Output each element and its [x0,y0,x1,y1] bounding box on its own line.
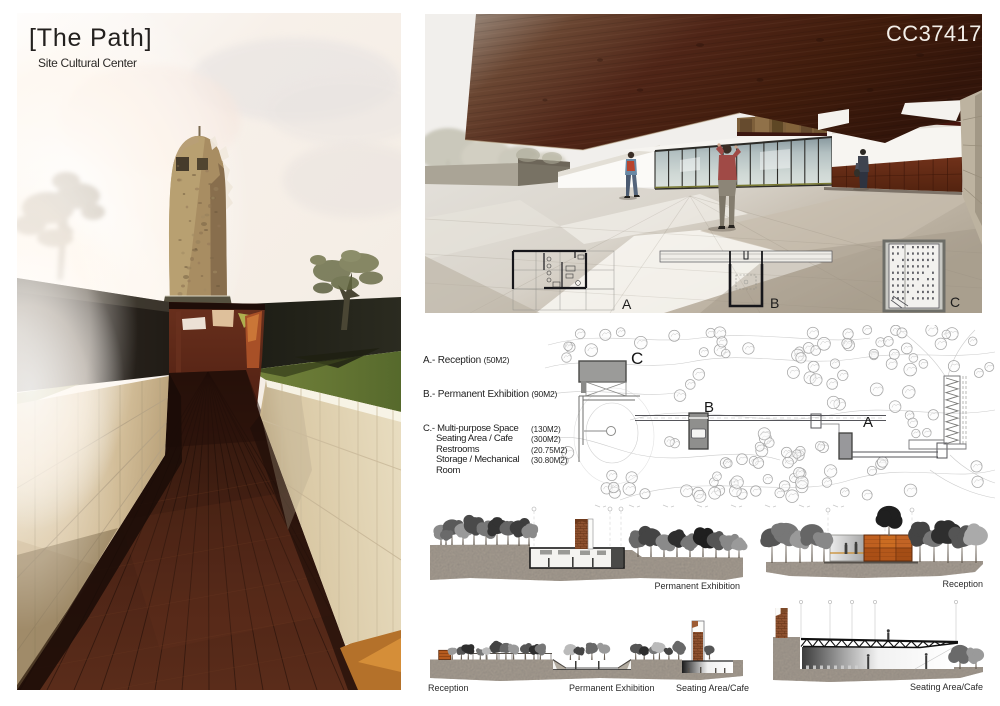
svg-text:C: C [950,294,960,310]
svg-text:A: A [863,414,873,431]
svg-text:B: B [704,399,714,416]
svg-text:C: C [631,349,643,368]
svg-text:Reception: Reception [428,683,469,693]
svg-text:Reception: Reception [942,579,983,589]
svg-text:A: A [622,296,632,312]
svg-text:Permanent Exhibition: Permanent Exhibition [569,683,655,693]
svg-text:Permanent Exhibition: Permanent Exhibition [654,581,740,591]
svg-text:Seating Area/Cafe: Seating Area/Cafe [676,683,749,693]
svg-text:Seating Area/Cafe: Seating Area/Cafe [910,682,983,692]
svg-text:B: B [770,295,779,311]
